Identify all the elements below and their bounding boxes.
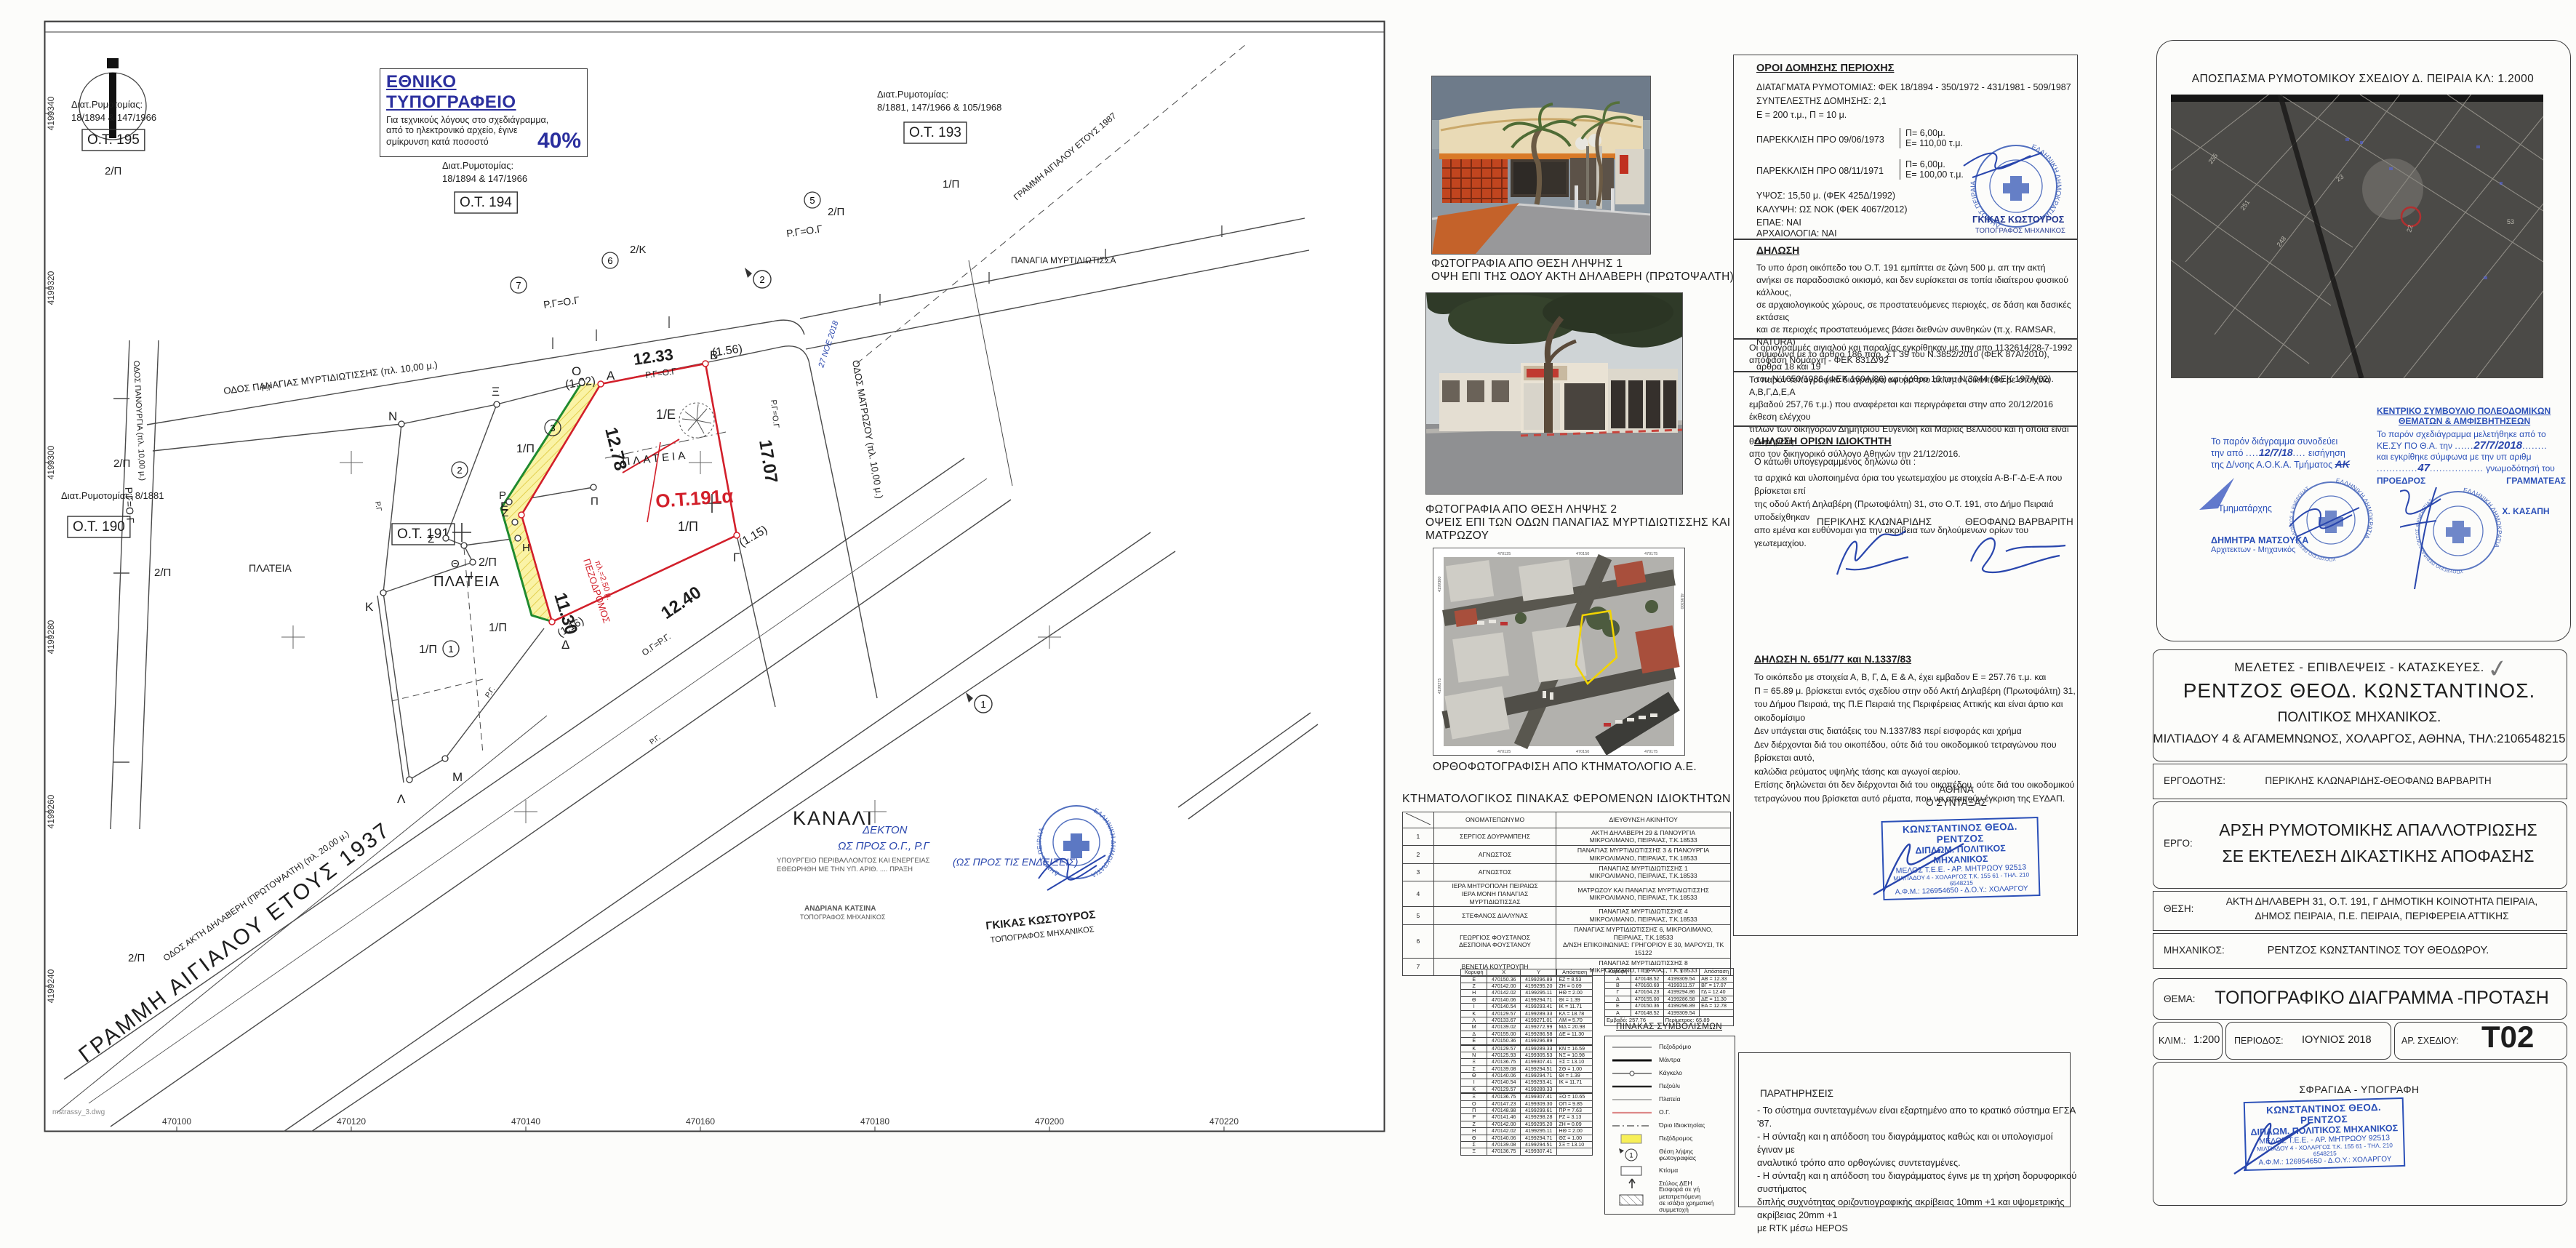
cadastral-table: ΟΝΟΜΑΤΕΠΩΝΥΜΟ ΔΙΕΥΘΥΝΣΗ ΑΚΙΝΗΤΟΥ 1ΣΕΡΓΙΟ… [1402, 812, 1731, 976]
oroi-line2: ΣΥΝΤΕΛΕΣΤΗΣ ΔΟΜΗΣΗΣ: 2,1 [1756, 96, 1887, 106]
coords-row: Β470160.694199311.57ΒΓ = 17.07 [1605, 983, 1734, 989]
coords-header: Κορυφή [1461, 969, 1487, 977]
owner-name-1: ΠΕΡΙΚΛΗΣ ΚΛΩΝΑΡΙΔΗΣ [1817, 516, 1932, 527]
coords-row: Ξ470136.754199307.41ΞΣ = 13.10 [1461, 1059, 1593, 1065]
plot-vertex-point [703, 361, 708, 367]
survey-point [461, 543, 467, 548]
tb-engineer-value: ΡΕΝΤΖΟΣ ΚΩΝΣΤΑΝΤΙΝΟΣ ΤΟΥ ΘΕΟΔΩΡΟΥ. [2225, 945, 2531, 956]
coords-cell: 4199305.53 [1521, 1052, 1557, 1058]
ministry-round-stamp-2: ΕΛΛΗΝΙΚΗ ΔΗΜΟΚΡΑΤΙΑ ΥΠΟΥΡΓΕΙΟ ΠΕΡΙΒΑΛΛΟΝ… [2400, 473, 2516, 596]
coords-row: Κ470129.574199289.33 [1461, 1086, 1593, 1093]
legend-label: Πεζόδρομος [1659, 1135, 1692, 1142]
tb-period-value: ΙΟΥΝΙΟΣ 2018 [2302, 1034, 2372, 1046]
coords-row: Ε470150.364199296.89 [1461, 1038, 1593, 1045]
coords-cell: Κ [1461, 1045, 1487, 1052]
survey-point [579, 380, 585, 385]
coords-table-left: ΚορυφήΧΥΑπόστασηΕ470150.364199296.89ΕΖ =… [1460, 969, 1593, 1156]
axis-x-label: 470160 [686, 1116, 715, 1127]
coords-cell: ΖΗ = 0.09 [1557, 983, 1593, 990]
coords-cell: ΚΝ = 16.59 [1557, 1045, 1593, 1052]
coords-cell: Ξ [1461, 1148, 1487, 1155]
photo-2-caption: ΦΩΤΟΓΡΑΦΙΑ ΑΠΟ ΘΕΣΗ ΛΗΨΗΣ 2 ΟΨΕΙΣ ΕΠΙ ΤΩ… [1425, 503, 1767, 543]
cadastral-row: 2ΑΓΝΩΣΤΟΣΠΑΝΑΓΙΑΣ ΜΥΡΤΙΔΙΩΤΙΣΣΗΣ 3 & ΠΑΝ… [1403, 846, 1731, 863]
svg-text:470125: 470125 [1497, 750, 1511, 754]
map-label: ΕΘΕΩΡΗΘΗ ΜΕ ΤΗΝ ΥΠ. ΑΡΙΘ. .... ΠΡΑΞΗ [777, 865, 913, 873]
coords-cell: Μ [1461, 1024, 1487, 1031]
coords-table-right: ΚορυφήΧΥΑπόστασηΑ470148.524199309.54ΑΒ =… [1604, 968, 1734, 1026]
text-line: Δεν υπάγεται στις διατάξεις του Ν.1337/8… [1754, 724, 2085, 738]
stampL-line1: Το παρόν διάγραμμα συνοδεύει [2211, 436, 2378, 447]
coords-cell: Π [1461, 1108, 1487, 1114]
coords-row: Ν470125.934199305.53ΝΞ = 10.98 [1461, 1052, 1593, 1058]
cadastral-cell-name: ΙΕΡΑ ΜΗΤΡΟΠΟΛΗ ΠΕΙΡΑΙΩΣΙΕΡΑ ΜΟΝΗ ΠΑΝΑΓΙΑ… [1433, 881, 1556, 907]
map-label: Α [607, 369, 615, 383]
coords-cell: ΝΞ = 10.98 [1557, 1052, 1593, 1058]
legend-label: Κτίσμα [1659, 1167, 1678, 1174]
coords-cell: Ι [1461, 1004, 1487, 1010]
legend-item: Κάγκελο [1605, 1067, 1735, 1080]
owner-signature-1 [1827, 527, 1921, 585]
axis-x-label: 470120 [337, 1116, 366, 1127]
coords-cell: 470125.93 [1487, 1052, 1521, 1058]
map-label: 1/Π [516, 443, 535, 455]
law-declaration-heading: ΔΗΛΩΣΗ Ν. 651/77 και Ν.1337/83 [1754, 653, 1911, 665]
coords-cell: 470129.57 [1487, 1045, 1521, 1052]
tb-engineer-label: ΜΗΧΑΝΙΚΟΣ: [2164, 945, 2225, 956]
coords-cell: 470148.98 [1487, 1108, 1521, 1114]
map-label: Ξ [492, 385, 500, 399]
cadastral-row: 6ΓΕΩΡΓΙΟΣ ΦΟΥΣΤΑΝΟΣΔΕΣΠΟΙΝΑ ΦΟΥΣΤΑΝΟΥΠΑΝ… [1403, 924, 1731, 958]
map-label: Ι [470, 569, 473, 582]
photo-2-caption-line1: ΦΩΤΟΓΡΑΦΙΑ ΑΠΟ ΘΕΣΗ ΛΗΨΗΣ 2 [1425, 503, 1767, 516]
coords-cell: Η [1461, 990, 1487, 996]
svg-text:470125: 470125 [1497, 552, 1511, 556]
legend-item: Όριο Ιδιοκτησίας [1605, 1119, 1735, 1132]
map-label: Π [591, 495, 599, 508]
axis-x-label: 470100 [162, 1116, 191, 1127]
orthophoto: 470125470150470175 470125470150470175 41… [1433, 548, 1685, 756]
surveyor-name: ΓΚΙΚΑΣ ΚΩΣΤΟΥΡΟΣ [1972, 215, 2065, 225]
coords-cell: Σ [1461, 1065, 1487, 1072]
survey-point [442, 756, 448, 761]
map-label: 2/Π [479, 556, 497, 569]
coords-cell: 4199307.41 [1521, 1093, 1557, 1100]
legend-item: 1Θέση λήψηςφωτογραφίας [1605, 1145, 1735, 1164]
map-label: ΩΣ ΠΡΟΣ Ο.Γ., Ρ.Γ [838, 840, 931, 852]
cadastral-row: 4ΙΕΡΑ ΜΗΤΡΟΠΟΛΗ ΠΕΙΡΑΙΩΣΙΕΡΑ ΜΟΝΗ ΠΑΝΑΓΙ… [1403, 881, 1731, 907]
cadastral-cell-addr: ΠΑΝΑΓΙΑΣ ΜΥΡΤΙΔΙΩΤΙΣΣΗΣ 1ΜΙΚΡΟΛΙΜΑΝΟ, ΠΕ… [1556, 863, 1731, 881]
tb-client-label: ΕΡΓΟΔΟΤΗΣ: [2164, 775, 2225, 786]
survey-point [407, 777, 412, 783]
coords-row: Α470148.524199309.54 [1605, 1009, 1734, 1016]
axis-x-label: 470140 [511, 1116, 540, 1127]
coords-cell: ΔΕ = 11.30 [1700, 996, 1734, 1002]
photo-1-caption-line1: ΦΩΤΟΓΡΑΦΙΑ ΑΠΟ ΘΕΣΗ ΛΗΨΗΣ 1 [1431, 257, 1744, 271]
tb-scale-value: 1:200 [2193, 1034, 2220, 1046]
coords-cell: 470164.23 [1631, 989, 1663, 996]
cadastral-cell-num: 5 [1403, 907, 1434, 924]
photo-position-number: 1 [980, 699, 985, 710]
text-line: - Η σύνταξη και η απόδοση του διαγράμματ… [1757, 1130, 2077, 1156]
owner-name-2: ΘΕΟΦΑΝΩ ΒΑΡΒΑΡΙΤΗ [1965, 516, 2073, 527]
map-label: ΤΟΠΟΓΡΑΦΟΣ ΜΗΧΑΝΙΚΟΣ [800, 913, 886, 921]
tb-stamp-label: ΣΦΡΑΓΙΔΑ - ΥΠΟΓΡΑΦΗ [2153, 1084, 2566, 1095]
map-label: 2/Π [828, 206, 844, 218]
coords-cell: Δ [1605, 996, 1631, 1002]
map-label: 18/1894 & 147/1966 [71, 112, 156, 123]
oroi-parekklisi1: ΠΑΡΕΚΚΛΙΣΗ ΠΡΟ 09/06/1973 [1756, 135, 1884, 145]
cadastral-cell-num: 3 [1403, 863, 1434, 881]
svg-text:53: 53 [2507, 218, 2514, 225]
coords-cell: 4199272.99 [1521, 1024, 1557, 1031]
coords-cell: 4199309.54 [1663, 1009, 1699, 1016]
map-label: 2/Π [113, 457, 130, 470]
extract-title: ΑΠΟΣΠΑΣΜΑ ΡΥΜΟΤΟΜΙΚΟΥ ΣΧΕΔΙΟΥ Δ. ΠΕΙΡΑΙΑ… [2156, 73, 2569, 86]
declaration-heading: ΔΗΛΩΣΗ [1756, 244, 1799, 256]
text-line: εμβαδού 257,76 τ.μ.) που αναφέρεται και … [1749, 399, 2075, 423]
map-label: Λ [397, 792, 406, 806]
survey-point [380, 590, 386, 596]
cadastral-cell-num: 2 [1403, 846, 1434, 863]
coords-cell: 4199294.51 [1521, 1141, 1557, 1148]
cadastral-cell-num: 4 [1403, 881, 1434, 907]
legend-item: Πεζόδρομος [1605, 1132, 1735, 1145]
coords-cell: Γ [1605, 989, 1631, 996]
map-label: Διατ.Ρυμοτομίας: [71, 99, 143, 110]
coords-cell: 4199294.51 [1521, 1065, 1557, 1072]
photo-2-image [1426, 293, 1682, 494]
oroi-line3: Ε = 200 τ.μ., Π = 10 μ. [1756, 110, 1847, 120]
coords-cell: 4199296.89 [1521, 1038, 1557, 1045]
coords-cell: 4199307.41 [1521, 1148, 1557, 1155]
parcel-number: 7 [516, 280, 521, 291]
map-label: Ο.Τ. 190 [73, 519, 125, 535]
tb-project-label: ΕΡΓΟ: [2164, 838, 2193, 849]
coords-cell: Ζ [1461, 983, 1487, 990]
coords-cell: 4199296.89 [1521, 976, 1557, 983]
coords-cell: Ρ [1461, 1114, 1487, 1121]
coords-cell: 4199286.58 [1521, 1031, 1557, 1037]
coords-cell: 4199289.33 [1521, 1045, 1557, 1052]
coords-cell: 4199311.57 [1663, 983, 1699, 989]
coords-cell: 470160.69 [1631, 983, 1663, 989]
map-label: 18/1894 & 147/1966 [442, 173, 527, 184]
legend-item: Πεζοδρόμιο [1605, 1041, 1735, 1054]
text-line: σε αρχαιολογικούς χώρους, σε προστατευόμ… [1756, 299, 2076, 324]
map-label: 1/Ε [656, 407, 676, 422]
legend-label: Όριο Ιδιοκτησίας [1659, 1122, 1705, 1129]
notes-heading: ΠΑΡΑΤΗΡΗΣΕΙΣ [1760, 1088, 1833, 1099]
map-label: 2/Π [128, 952, 145, 964]
coords-header: Κορυφή [1605, 969, 1631, 976]
coords-cell: Κ [1461, 1086, 1487, 1093]
map-label: Γ [733, 551, 740, 564]
stampR-h2: ΘΕΜΑΤΩΝ & ΑΜΦΙΣΒΗΤΗΣΕΩΝ [2399, 416, 2566, 426]
stampR-date: 27/7/2018 [2473, 439, 2522, 452]
parcel-number: 6 [607, 255, 612, 266]
coords-cell: Θ [1461, 996, 1487, 1003]
coords-cell: ΒΓ = 17.07 [1700, 983, 1734, 989]
legend-item: Πλατεία [1605, 1093, 1735, 1106]
tb-address: ΜΙΛΤΙΑΔΟΥ 4 & ΑΓΑΜΕΜΝΩΝΟΣ, ΧΟΛΑΡΓΟΣ, ΑΘΗ… [2153, 732, 2566, 746]
coords-cell: ΕΑ = 12.78 [1700, 1003, 1734, 1009]
coords-row: Γ470164.234199294.86ΓΔ = 12.40 [1605, 989, 1734, 996]
engineer-signature-1 [1862, 822, 1993, 902]
coords-cell: Ι [1461, 1079, 1487, 1086]
stampR-line2a: ΚΕ.ΣΥ ΠΟ Θ.Α. την [2377, 441, 2452, 451]
coords-row: Δ470155.004199286.58ΔΕ = 11.30 [1605, 996, 1734, 1002]
text-line: απόφαση Νομάρχη - ΦΕΚ 831Δ/92 [1749, 354, 2073, 367]
map-label: ΠΛΑΤΕΙΑ [433, 574, 500, 590]
tb-profession: ΠΟΛΙΤΙΚΟΣ ΜΗΧΑΝΙΚΟΣ. [2153, 710, 2566, 726]
map-label: Θ [451, 558, 460, 570]
cadastral-row: 1ΣΕΡΓΙΟΣ ΔΟΥΡΑΜΠΕΗΣΑΚΤΗ ΔΗΛΑΒΕΡΗ 29 & ΠΑ… [1403, 828, 1731, 845]
map-label: ΠΛΑΤΕΙΑ [249, 562, 292, 574]
coords-row: Ι470140.544199293.41ΙΚ = 11.71 [1461, 1004, 1593, 1010]
map-label: 1/Π [419, 644, 437, 656]
coords-row: Σ470139.084199294.51ΣΞ = 13.10 [1461, 1141, 1593, 1148]
map-label: ΑΝΔΡΙΑΝΑ ΚΑΤΣΙΝΑ [804, 905, 876, 913]
coords-cell: Β [1605, 983, 1631, 989]
coords-cell: 470142.00 [1487, 983, 1521, 990]
svg-text:ΕΛΛΗΝΙΚΗ ΔΗΜΟΚΡΑΤΙΑ: ΕΛΛΗΝΙΚΗ ΔΗΜΟΚΡΑΤΙΑ [2030, 143, 2063, 220]
coords-cell: 4199293.41 [1521, 1079, 1557, 1086]
coords-row: Ρ470141.464199298.28ΡΖ = 3.13 [1461, 1114, 1593, 1121]
parcel-number: 1 [448, 644, 453, 655]
photo-1 [1431, 76, 1651, 255]
topographic-drawing-sheet: ΕΛΛΗΝΙΚΗ ΔΗΜΟΚΡΑΤΙΑ ΔΗΜΟΣ ΠΕΙΡΑΙΑ Διατ.Ρ… [0, 0, 2576, 1248]
photo-1-image [1432, 76, 1650, 254]
author-label: Ο ΣΥΝΤΑΞΑΣ [1905, 797, 2007, 808]
tb-drawing-no-label: ΑΡ. ΣΧΕΔΙΟΥ: [2401, 1036, 2459, 1046]
coords-cell [1557, 1148, 1593, 1155]
map-label: Διατ.Ρυμοτομίας: [442, 160, 513, 171]
coords-cell: 470150.36 [1631, 1003, 1663, 1009]
coords-cell: ΑΒ = 12.33 [1700, 975, 1734, 982]
text-line: διπλής συχνότητας οριζοντιογραφικής ακρί… [1757, 1196, 2077, 1222]
coords-cell: ΘΙ = 1.39 [1557, 996, 1593, 1003]
engineer-signature-2 [2223, 1101, 2353, 1181]
map-label: ΠΑΝΑΓΙΑ ΜΥΡΤΙΔΙΩΤΙΣΣΑ [1011, 255, 1116, 265]
photo-2-caption-line2: ΟΨΕΙΣ ΕΠΙ ΤΩΝ ΟΔΩΝ ΠΑΝΑΓΙΑΣ ΜΥΡΤΙΔΙΩΤΙΣΣ… [1425, 516, 1767, 543]
coords-cell: ΣΘ = 1.00 [1557, 1065, 1593, 1072]
tb-subject-label: ΘΕΜΑ: [2164, 993, 2196, 1004]
coords-cell: 470139.08 [1487, 1141, 1521, 1148]
svg-text:4199275: 4199275 [1438, 679, 1442, 694]
coords-cell: Θ [1461, 1135, 1487, 1141]
map-label: Β [710, 348, 718, 362]
map-label: 1/Π [943, 178, 959, 191]
reduction-line3: σμίκρυνση κατά ποσοστό [386, 137, 489, 147]
coords-cell: 470140.54 [1487, 1079, 1521, 1086]
coords-cell [1700, 1009, 1734, 1016]
map-label: ΚΑΝΑΛΙ [793, 807, 873, 829]
map-label: ΔΕΚΤΟΝ [862, 824, 908, 836]
survey-point [506, 499, 512, 505]
survey-point [512, 519, 518, 525]
cadastral-row: 3ΑΓΝΩΣΤΟΣΠΑΝΑΓΙΑΣ ΜΥΡΤΙΔΙΩΤΙΣΣΗΣ 1ΜΙΚΡΟΛ… [1403, 863, 1731, 881]
legend-swatch-thin [1611, 1044, 1653, 1051]
coords-cell: ΕΖ = 8.53 [1557, 976, 1593, 983]
legend-swatch-dashdot [1611, 1122, 1653, 1129]
legend-swatch-og [1611, 1109, 1653, 1116]
legend-item: Μάντρα [1605, 1054, 1735, 1067]
coords-cell: 4199309.54 [1663, 975, 1699, 982]
cadastral-title: ΚΤΗΜΑΤΟΛΟΓΙΚΟΣ ΠΙΝΑΚΑΣ ΦΕΡΟΜΕΝΩΝ ΙΔΙΟΚΤΗ… [1402, 793, 1731, 806]
coords-cell: Ε [1461, 1038, 1487, 1045]
legend-swatch-ledge [1611, 1083, 1653, 1090]
coords-cell: ΜΔ = 20.98 [1557, 1024, 1593, 1031]
svg-text:470175: 470175 [1644, 750, 1657, 754]
tb-period-label: ΠΕΡΙΟΔΟΣ: [2234, 1036, 2284, 1046]
parcel-number: 2 [457, 465, 462, 476]
ministry-round-stamp-1: ΕΛΛΗΝΙΚΗ ΔΗΜΟΚΡΑΤΙΑ ΥΠΟΥΡΓΕΙΟ ΠΕΡΙΒΑΛΛΟΝ… [2276, 465, 2385, 575]
cadastral-row: 5ΣΤΕΦΑΝΟΣ ΔΙΑΛΥΝΑΣΠΑΝΑΓΙΑΣ ΜΥΡΤΙΔΙΩΤΙΣΣΗ… [1403, 907, 1731, 924]
map-label: Ο.Τ. 191 [397, 527, 449, 542]
map-label: Ζ [502, 507, 508, 519]
svg-text:4199300: 4199300 [1679, 593, 1684, 609]
coords-cell: 4199289.33 [1521, 1086, 1557, 1093]
coords-cell: 470155.00 [1487, 1031, 1521, 1037]
legend-swatch-hatch [1611, 1193, 1653, 1207]
coords-row: Ζ470142.004199295.20ΖΗ = 0.09 [1461, 983, 1593, 990]
map-label: Ρ.Γ [261, 383, 273, 393]
tb-location-label: ΘΕΣΗ: [2164, 903, 2193, 914]
tb-project-box [2153, 801, 2567, 889]
text-line: - Η σύνταξη και η απόδοση του διαγράμματ… [1757, 1169, 2077, 1196]
coords-cell: 470140.06 [1487, 996, 1521, 1003]
coords-cell: ΙΚ = 11.71 [1557, 1079, 1593, 1086]
plot-vertex-point [734, 532, 740, 538]
legend-label: Ο.Γ. [1659, 1109, 1670, 1116]
coords-cell: 470140.06 [1487, 1073, 1521, 1079]
svg-text:ΕΛΛΗΝΙΚΗ ΔΗΜΟΚΡΑΤΙΑ: ΕΛΛΗΝΙΚΗ ΔΗΜΟΚΡΑΤΙΑ [2335, 476, 2375, 540]
survey-point [470, 559, 476, 565]
coords-header: Υ [1663, 969, 1699, 976]
coords-cell: 4199299.61 [1521, 1108, 1557, 1114]
coords-cell: ΚΛ = 18.78 [1557, 1010, 1593, 1017]
cadastral-cell-addr: ΠΑΝΑΓΙΑΣ ΜΥΡΤΙΔΙΩΤΙΣΣΗΣ 4ΜΙΚΡΟΛΙΜΑΝΟ, ΠΕ… [1556, 907, 1731, 924]
cadastral-cell-name: ΑΓΝΩΣΤΟΣ [1433, 846, 1556, 863]
cadastral-cell-addr: ΑΚΤΗ ΔΗΛΑΒΕΡΗ 29 & ΠΑΝΟΥΡΓΙΑΜΙΚΡΟΛΙΜΑΝΟ,… [1556, 828, 1731, 845]
map-label: 1/Π [489, 622, 507, 634]
coords-row: Α470148.524199309.54ΑΒ = 12.33 [1605, 975, 1734, 982]
coords-cell: 470133.67 [1487, 1017, 1521, 1023]
reduction-percent: 40% [537, 129, 581, 153]
coords-cell: Ε [1461, 976, 1487, 983]
coords-cell: 4199294.71 [1521, 1135, 1557, 1141]
orthophoto-image: 470125470150470175 470125470150470175 41… [1433, 548, 1684, 755]
legend-title: ΠΙΝΑΚΑΣ ΣΥΜΒΟΛΙΣΜΩΝ [1604, 1023, 1734, 1031]
plot-vertex-point [598, 381, 604, 387]
coords-row: Θ470140.064199294.71ΘΙ = 1.39 [1461, 1073, 1593, 1079]
oroi-line4: ΥΨΟΣ: 15,50 μ. (ΦΕΚ 425Δ/1992) [1756, 191, 1895, 201]
coords-cell: ΞΟ = 10.65 [1557, 1093, 1593, 1100]
legend-swatch-photo: 1 [1611, 1148, 1653, 1162]
coords-cell: 470129.57 [1487, 1010, 1521, 1017]
photo-position-number: 2 [759, 274, 764, 285]
coords-cell: 4199309.30 [1521, 1100, 1557, 1107]
coords-cell: Η [1461, 1128, 1487, 1135]
extract-map-image: 255 251 248 23 53 22 [2171, 95, 2543, 378]
axis-x-label: 470220 [1209, 1116, 1239, 1127]
coords-cell: ΠΡ = 7.63 [1557, 1108, 1593, 1114]
text-line: καλώδια ρεύματος υψηλής τάσης και αγωγοί… [1754, 765, 2085, 779]
reduction-notice-box: ΕΘΝΙΚΟ ΤΥΠΟΓΡΑΦΕΙΟ Για τεχνικούς λόγους … [380, 68, 588, 157]
coords-row: Θ470140.064199294.71ΘΙ = 1.39 [1461, 996, 1593, 1003]
coords-cell: 470129.57 [1487, 1086, 1521, 1093]
coords-cell: Ν [1461, 1052, 1487, 1058]
plot-vertex-point [549, 619, 555, 625]
stampR-line3: και εγκρίθηκε σύμφωνα με την υπ αριθμ [2377, 452, 2566, 462]
cadastral-cell-name: ΑΓΝΩΣΤΟΣ [1433, 863, 1556, 881]
map-label: Δ [561, 638, 569, 652]
stampR-line1: Το παρόν σχεδιάγραμμα μελετήθηκε από το [2377, 429, 2566, 439]
coords-cell: ΖΗ = 0.09 [1557, 1121, 1593, 1127]
coords-cell: Α [1605, 1009, 1631, 1016]
axis-x-label: 470200 [1035, 1116, 1064, 1127]
coords-row: Ε470150.364199296.89ΕΑ = 12.78 [1605, 1003, 1734, 1009]
coords-cell: Δ [1461, 1031, 1487, 1037]
map-label: Ρ [499, 489, 506, 502]
map-label: Διατ.Ρυμοτομίας: 8/1881 [61, 490, 164, 501]
parcel-number: 5 [809, 195, 815, 206]
coords-cell: ΞΣ = 13.10 [1557, 1059, 1593, 1065]
coords-cell: 470136.75 [1487, 1059, 1521, 1065]
coords-cell: 470150.36 [1487, 976, 1521, 983]
coords-cell: 470155.00 [1631, 996, 1663, 1002]
oroi-line6: ΕΠΑΕ: ΝΑΙ [1756, 217, 1801, 228]
coords-cell: 470142.02 [1487, 1128, 1521, 1135]
coords-cell: ΘΙ = 1.39 [1557, 1073, 1593, 1079]
text-line: Το υπο άρση οικόπεδο του Ο.Τ. 191 εμπίπτ… [1756, 262, 2076, 274]
coords-cell: ΗΘ = 2.00 [1557, 990, 1593, 996]
reduction-title: ΕΘΝΙΚΟ ΤΥΠΟΓΡΑΦΕΙΟ [386, 72, 581, 113]
coords-cell: 470148.52 [1631, 1009, 1663, 1016]
coords-header: Υ [1521, 969, 1557, 977]
coords-header: Απόσταση [1700, 969, 1734, 976]
coords-row: Π470148.984199299.61ΠΡ = 7.63 [1461, 1108, 1593, 1114]
svg-text:470150: 470150 [1576, 552, 1589, 556]
map-label: (ΩΣ ΠΡΟΣ ΤΙΣ ΕΝΔΕΙΞΕΙΣ) [953, 856, 1078, 868]
coords-cell: 470142.00 [1487, 1121, 1521, 1127]
map-label: Ν [388, 409, 397, 423]
cadastral-cell-num: 7 [1403, 958, 1434, 975]
coords-row: Δ470155.004199286.58ΔΕ = 11.30 [1461, 1031, 1593, 1037]
notes-text: - Το σύστημα συντεταγμένων είναι εξαρτημ… [1757, 1104, 2077, 1235]
map-label: Σ [428, 533, 434, 545]
text-line: Το οικόπεδο με στοιχεία Α, Β, Γ, Δ, Ε & … [1754, 671, 2085, 684]
athens-label: ΑΘΗΝΑ [1905, 784, 2007, 795]
tb-drawing-no-value: Τ02 [2481, 1020, 2534, 1055]
text-line: του Δήμου Πειραιά, της Π.Ε Πειραιά της Π… [1754, 697, 2085, 724]
coords-cell: 470142.02 [1487, 990, 1521, 996]
text-line: Δεν διέρχονται διά του οικοπέδου, ούτε δ… [1754, 738, 2085, 765]
oroi-line1: ΔΙΑΤΑΓΜΑΤΑ ΡΥΜΟΤΟΜΙΑΣ: ΦΕΚ 18/1894 - 350… [1756, 82, 2071, 92]
coords-cell: Ξ [1461, 1059, 1487, 1065]
building-terms-heading: ΟΡΟΙ ΔΟΜΗΣΗΣ ΠΕΡΙΟΧΗΣ [1756, 63, 1894, 74]
coords-cell: Θ [1461, 1073, 1487, 1079]
text-line: τα αρχικά και υλοποιημένα όρια του γεωτε… [1754, 471, 2080, 497]
cadastral-col-addr: ΔΙΕΥΘΥΝΣΗ ΑΚΙΝΗΤΟΥ [1556, 812, 1731, 828]
coords-row: Μ470139.024199272.99ΜΔ = 20.98 [1461, 1024, 1593, 1031]
coords-cell: 4199294.71 [1521, 996, 1557, 1003]
coords-cell: ΡΖ = 3.13 [1557, 1114, 1593, 1121]
legend-label: Κάγκελο [1659, 1070, 1682, 1076]
coords-cell: Λ [1461, 1017, 1487, 1023]
legend-item: Κτίσμα [1605, 1164, 1735, 1177]
photo-2 [1425, 292, 1683, 495]
